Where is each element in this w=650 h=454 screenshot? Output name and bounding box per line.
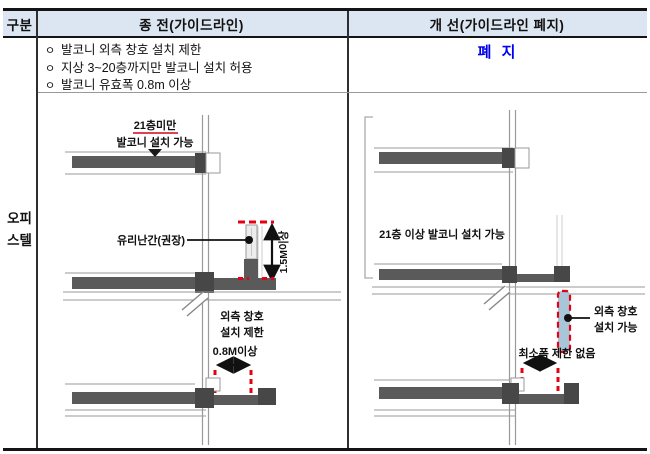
balcony-slab [517,274,559,282]
floor-slab-middle [374,264,570,283]
floor-slab-upper [374,148,529,172]
bullet-item: ㅇ지상 3~20층까지만 발코니 설치 허용 [45,60,345,78]
floor-limit-annotation: 21층미만 발코니 설치 가능 [117,118,194,157]
abolished-status: 폐 지 [349,11,647,92]
before-diagram: 21층미만 발코니 설치 가능 1.5M이상 유리난간(권장) [36,92,347,445]
window-allowed-line1: 외측 창호 [594,304,638,318]
header-before: 종 전(가이드라인) [36,11,347,36]
bullet-icon: ㅇ [45,61,61,78]
min-width-label: 최소폭 제한 없음 [519,346,596,360]
leader-dot-icon [245,236,253,244]
window-restriction-annotation: 외측 창호 설치 제한 [220,309,264,339]
comparison-table: 구분 종 전(가이드라인) 개 선(가이드라인 폐지) 오피 스텔 ㅇ발코니 외… [3,8,647,451]
zone-bracket-icon [365,117,373,278]
exterior-window-annotation: 외측 창호 설치 가능 [558,291,638,352]
floor-slab-lower [65,378,276,416]
bullet-icon: ㅇ [45,43,61,60]
before-bullet-list: ㅇ발코니 외측 창호 설치 제한 ㅇ지상 3~20층까지만 발코니 설치 허용 … [45,42,345,95]
floor-slab-lower [374,378,579,416]
window-restriction-line1: 외측 창호 [220,309,264,323]
height-label: 1.5M이상 [277,230,290,273]
floor-label: 21층 이상 발코니 설치 가능 [379,227,505,241]
window-allowed-line2: 설치 가능 [594,320,638,334]
bullet-item: ㅇ발코니 외측 창호 설치 제한 [45,42,345,60]
balcony-railing-detail: 1.5M이상 유리난간(권장) [117,222,290,280]
floor-limit-label-line2: 발코니 설치 가능 [117,135,194,149]
window-restriction-line2: 설치 제한 [220,325,264,339]
row-label-officetel: 오피 스텔 [3,208,36,252]
document-page: 구분 종 전(가이드라인) 개 선(가이드라인 폐지) 오피 스텔 ㅇ발코니 외… [0,0,650,454]
window-frame-lines [557,215,562,267]
header-category: 구분 [3,11,36,36]
railing-base [244,259,258,278]
break-mask [484,286,510,310]
floor-slab-upper [65,152,220,174]
balcony-curb [564,383,579,404]
balcony-curb [258,388,276,405]
after-diagram: 21층 이상 발코니 설치 가능 [349,92,647,445]
railing-label: 유리난간(권장) [117,233,185,247]
triangle-pointer-icon [148,149,162,157]
break-mask [182,292,208,316]
min-width-label: 0.8M이상 [213,344,258,358]
balcony-slab [519,394,564,404]
balcony-curb [554,266,570,282]
leader-dot-icon [564,314,572,322]
floor-limit-label-line1: 21층미만 [134,118,177,132]
min-width-annotation: 최소폭 제한 없음 [519,346,596,394]
